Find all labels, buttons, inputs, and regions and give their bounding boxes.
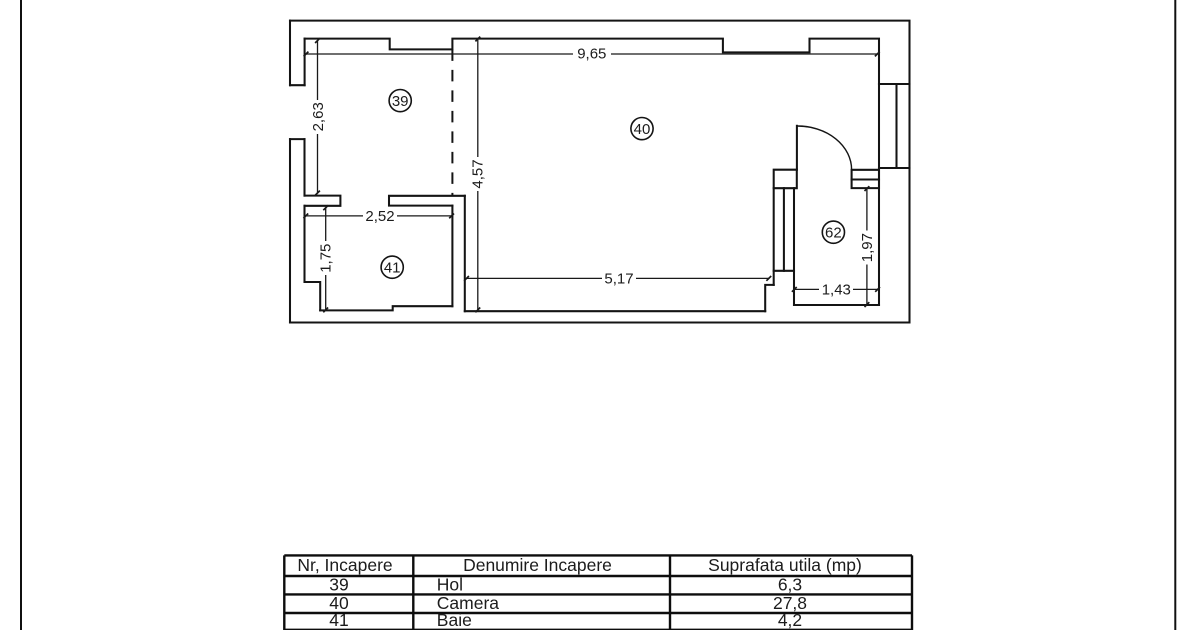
svg-text:1,43: 1,43 bbox=[822, 281, 851, 298]
svg-text:6,3: 6,3 bbox=[778, 574, 802, 594]
svg-text:Baie: Baie bbox=[437, 610, 472, 630]
svg-text:5,17: 5,17 bbox=[604, 270, 633, 287]
svg-text:Hol: Hol bbox=[437, 574, 463, 594]
svg-text:Nr, Incapere: Nr, Incapere bbox=[297, 555, 392, 575]
svg-text:39: 39 bbox=[392, 93, 409, 110]
svg-text:1,75: 1,75 bbox=[318, 244, 335, 273]
svg-text:40: 40 bbox=[634, 121, 651, 138]
svg-text:39: 39 bbox=[329, 574, 348, 594]
svg-text:41: 41 bbox=[329, 610, 348, 630]
svg-text:4,57: 4,57 bbox=[470, 159, 487, 188]
svg-text:Denumire Incapere: Denumire Incapere bbox=[463, 555, 612, 575]
svg-text:9,65: 9,65 bbox=[577, 46, 606, 63]
svg-text:4,2: 4,2 bbox=[778, 610, 802, 630]
svg-text:2,63: 2,63 bbox=[310, 102, 327, 131]
svg-text:1,97: 1,97 bbox=[859, 233, 876, 262]
svg-text:2,52: 2,52 bbox=[365, 208, 394, 225]
svg-text:41: 41 bbox=[384, 260, 401, 277]
svg-text:Suprafata utila (mp): Suprafata utila (mp) bbox=[708, 555, 862, 575]
svg-text:62: 62 bbox=[825, 225, 842, 242]
